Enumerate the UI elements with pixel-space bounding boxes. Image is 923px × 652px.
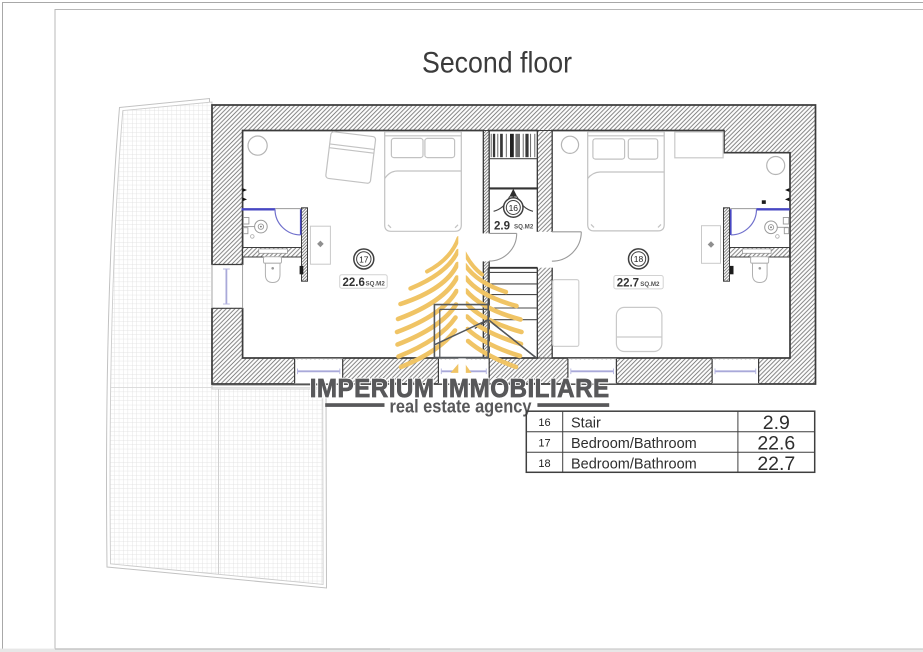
svg-text:16: 16 [509, 203, 519, 213]
svg-text:Stair: Stair [571, 416, 601, 432]
svg-text:17: 17 [359, 254, 369, 264]
svg-text:17: 17 [538, 438, 550, 450]
svg-text:Bedroom/Bathroom: Bedroom/Bathroom [571, 457, 697, 473]
svg-text:16: 16 [538, 417, 550, 429]
svg-text:real estate agency: real estate agency [390, 396, 533, 417]
svg-text:SQ.M2: SQ.M2 [640, 281, 660, 288]
svg-text:Bedroom/Bathroom: Bedroom/Bathroom [571, 436, 697, 452]
svg-text:22.6: 22.6 [343, 277, 365, 289]
svg-text:22.7: 22.7 [617, 278, 639, 290]
svg-text:18: 18 [634, 254, 644, 264]
svg-text:SQ.M2: SQ.M2 [366, 280, 386, 287]
svg-text:Second floor: Second floor [422, 47, 572, 80]
svg-text:18: 18 [538, 458, 550, 470]
svg-text:SQ.M2: SQ.M2 [514, 224, 534, 231]
svg-text:2.9: 2.9 [494, 220, 510, 232]
svg-text:22.6: 22.6 [757, 433, 795, 455]
svg-text:22.7: 22.7 [757, 453, 795, 475]
svg-text:2.9: 2.9 [763, 412, 790, 434]
